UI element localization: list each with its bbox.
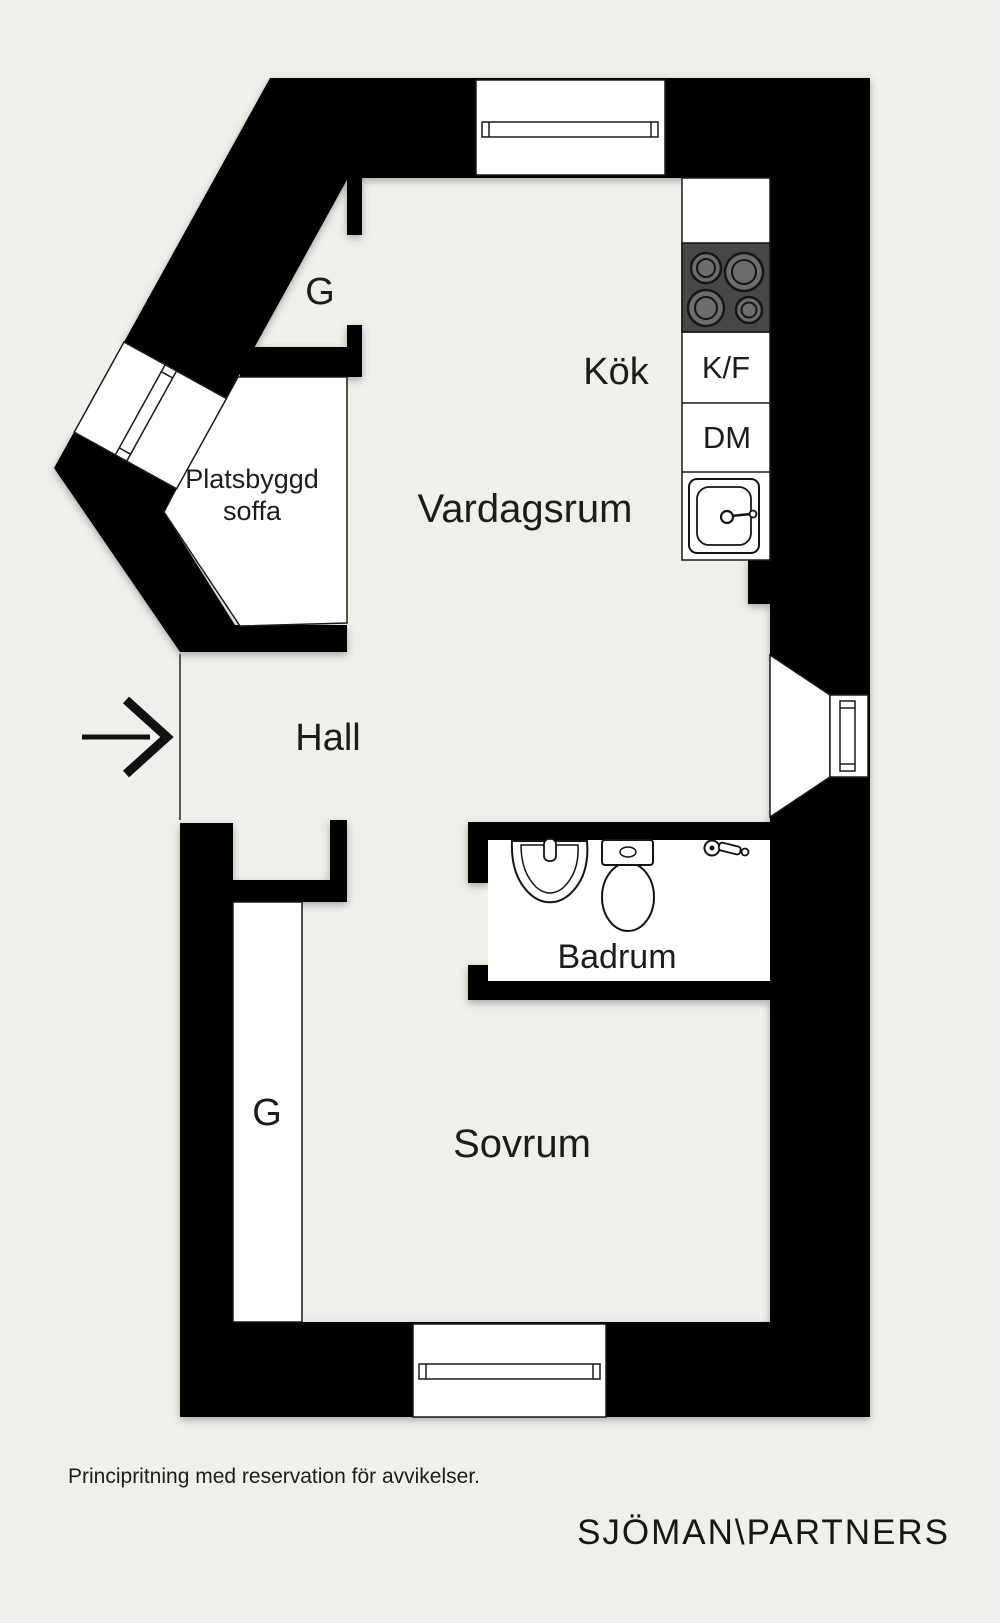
wall-bathroom-left-upper: [468, 822, 488, 883]
window-top: [476, 80, 665, 175]
hall-label: Hall: [295, 717, 360, 759]
wall-closet-top: [233, 880, 347, 902]
wall-closet-bar: [240, 347, 362, 377]
toilet-icon: [602, 840, 654, 931]
stove-icon: [682, 243, 770, 332]
dishwasher-label: DM: [703, 420, 751, 455]
window-bottom: [413, 1324, 606, 1417]
sofa-label-line2: soffa: [223, 496, 282, 526]
wall-left: [180, 823, 233, 1417]
wall-kitchen-end: [748, 560, 770, 604]
bedroom-label: Sovrum: [453, 1122, 591, 1166]
floor-plan-page: G Kök K/F DM Vardagsrum Platsbyggd soffa…: [0, 0, 1000, 1623]
wardrobe-bottom-label: G: [252, 1092, 282, 1134]
brand-logo: SJÖMAN\PARTNERS: [577, 1513, 950, 1552]
bathroom-label: Badrum: [557, 938, 676, 976]
fridge-freezer-label: K/F: [702, 350, 750, 385]
floor-plan-drawing: G Kök K/F DM Vardagsrum Platsbyggd soffa…: [0, 0, 1000, 1623]
disclaimer-text: Principritning med reservation för avvik…: [68, 1465, 480, 1488]
wall-closet-jamb-upper: [347, 178, 362, 235]
wall-bathroom-top: [468, 822, 772, 840]
living-room-label: Vardagsrum: [418, 487, 633, 531]
sofa-label-line1: Platsbyggd: [185, 464, 319, 494]
wall-closet-jamb-lower: [347, 325, 362, 347]
kitchen-sink-icon: [689, 479, 759, 553]
kitchen-label: Kök: [583, 351, 649, 393]
wall-bathroom-bottom: [468, 981, 772, 1000]
wardrobe-top-label: G: [305, 271, 335, 313]
